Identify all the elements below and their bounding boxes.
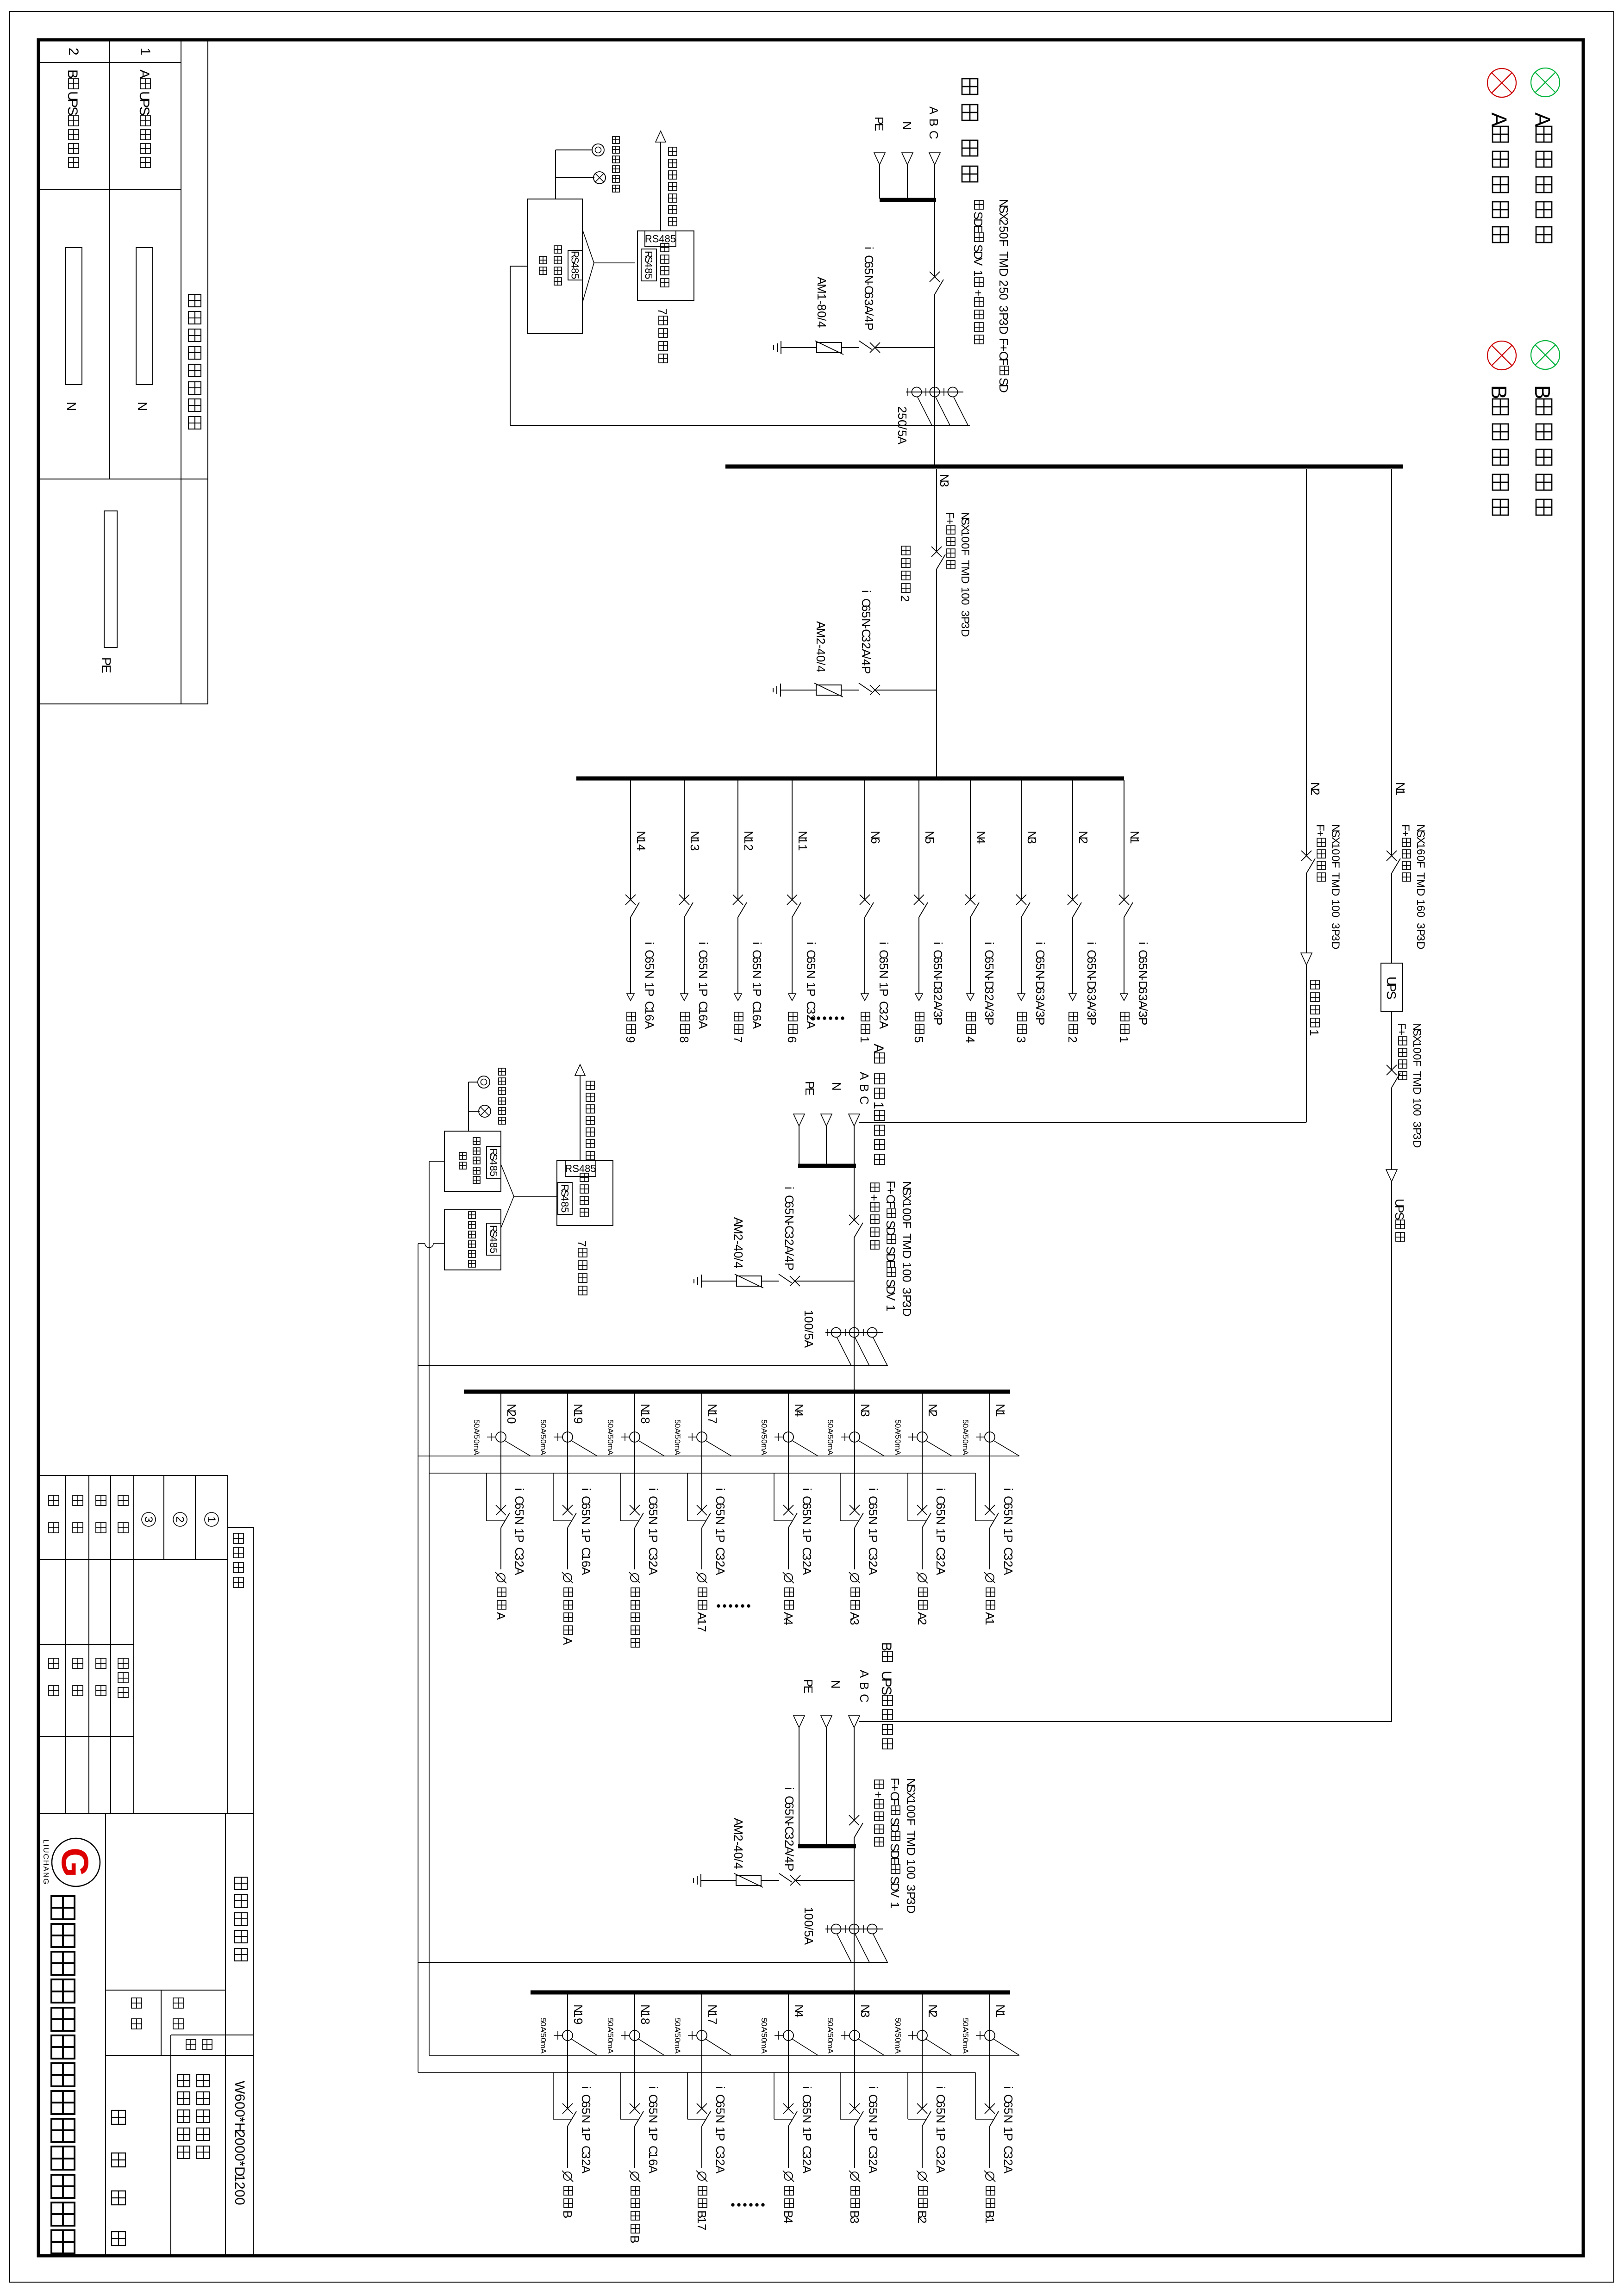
svg-text:2: 2 — [898, 595, 912, 602]
svg-text:50A/50mA: 50A/50mA — [961, 1419, 970, 1456]
svg-text:+: + — [867, 1194, 881, 1201]
svg-text:N1: N1 — [1393, 782, 1407, 795]
svg-text:iC65N1PC32A: iC65N1PC32A — [934, 2086, 948, 2174]
svg-text:7: 7 — [575, 1240, 589, 1247]
svg-text:N19: N19 — [571, 1404, 585, 1424]
svg-text:A: A — [561, 1637, 575, 1645]
svg-text:N1: N1 — [993, 1404, 1007, 1417]
svg-text:N2: N2 — [1308, 782, 1322, 795]
svg-text:50A/50mA: 50A/50mA — [539, 1419, 548, 1456]
svg-text:B: B — [561, 2210, 575, 2218]
svg-text:iC65N-C32A/4P: iC65N-C32A/4P — [782, 1187, 796, 1270]
svg-text:iC65N1PC32A: iC65N1PC32A — [713, 1488, 727, 1575]
svg-text:NSX160FTMD1603P3D: NSX160FTMD1603P3D — [1414, 824, 1427, 949]
svg-text:B17: B17 — [695, 2210, 709, 2230]
svg-text:50A/50mA: 50A/50mA — [893, 1419, 902, 1456]
svg-text:N: N — [829, 1680, 843, 1689]
svg-text:B4: B4 — [781, 2210, 795, 2223]
svg-text:RS485: RS485 — [559, 1184, 571, 1213]
svg-text:AM2-40/4: AM2-40/4 — [814, 621, 828, 672]
svg-text:F+OF: F+OF — [884, 1181, 898, 1208]
svg-text:1: 1 — [871, 1101, 886, 1109]
svg-text:N: N — [64, 402, 79, 411]
svg-text:iC65N1PC32A: iC65N1PC32A — [800, 2086, 814, 2174]
svg-text:N17: N17 — [706, 1404, 719, 1424]
svg-text:iC65N1PC32A: iC65N1PC32A — [804, 942, 818, 1029]
svg-text:F+: F+ — [943, 512, 956, 524]
svg-text:iC65N-D63A/3P: iC65N-D63A/3P — [1136, 942, 1150, 1025]
svg-text:N20: N20 — [505, 1404, 518, 1424]
svg-text:UPS: UPS — [879, 1671, 894, 1695]
svg-text:F+: F+ — [1395, 1023, 1408, 1035]
svg-text:SD: SD — [888, 1817, 902, 1833]
svg-text:7: 7 — [656, 308, 669, 315]
svg-text:SDE: SDE — [888, 1843, 902, 1865]
svg-text:iC65N1PC32A: iC65N1PC32A — [800, 1488, 814, 1575]
svg-text:NSX100FTMD1003P3D: NSX100FTMD1003P3D — [904, 1778, 918, 1914]
svg-text:iC65N1PC16A: iC65N1PC16A — [696, 942, 710, 1029]
svg-text:B: B — [628, 2235, 642, 2243]
svg-text:N14: N14 — [634, 831, 648, 851]
svg-text:N3: N3 — [858, 1404, 872, 1417]
svg-text:A17: A17 — [695, 1612, 709, 1632]
svg-text:N2: N2 — [926, 1404, 940, 1417]
svg-text:A2: A2 — [915, 1612, 929, 1625]
svg-text:B3: B3 — [848, 2210, 862, 2223]
svg-text:N1: N1 — [1128, 831, 1142, 844]
svg-text:iC65N1PC32A: iC65N1PC32A — [1001, 2086, 1015, 2174]
svg-text:B: B — [1487, 385, 1511, 399]
svg-text:RS485: RS485 — [645, 233, 676, 245]
svg-text:N: N — [900, 121, 914, 130]
svg-text:iC65N1PC16A: iC65N1PC16A — [750, 942, 764, 1029]
svg-text:50A/50mA: 50A/50mA — [606, 2018, 615, 2054]
svg-text:N3: N3 — [1025, 831, 1039, 844]
svg-text:SD: SD — [997, 378, 1011, 393]
svg-text:ABC: ABC — [857, 1072, 871, 1105]
svg-text:RS485: RS485 — [488, 1225, 500, 1253]
svg-text:iC65N-C63A/4P: iC65N-C63A/4P — [862, 247, 876, 330]
svg-text:N12: N12 — [742, 831, 756, 851]
svg-text:ABC: ABC — [857, 1670, 871, 1703]
svg-text:50A/50mA: 50A/50mA — [961, 2018, 970, 2054]
svg-text:B2: B2 — [915, 2210, 929, 2223]
svg-text:7: 7 — [731, 1036, 745, 1043]
svg-text:100/5A: 100/5A — [802, 1907, 816, 1945]
svg-text:NSX100FTMD1003P3D: NSX100FTMD1003P3D — [959, 512, 971, 637]
svg-text:B: B — [65, 69, 80, 79]
svg-text:N6: N6 — [868, 831, 882, 844]
svg-text:50A/50mA: 50A/50mA — [472, 1419, 481, 1456]
svg-text:50A/50mA: 50A/50mA — [826, 2018, 835, 2054]
svg-text:9: 9 — [624, 1036, 637, 1043]
svg-text:1: 1 — [1117, 1036, 1131, 1043]
svg-text:SD: SD — [884, 1220, 898, 1236]
svg-text:iC65N1PC16A: iC65N1PC16A — [646, 2086, 660, 2174]
svg-text:iC65N-D32A/3P: iC65N-D32A/3P — [982, 942, 996, 1025]
svg-text:+: + — [971, 289, 985, 296]
svg-text:50A/50mA: 50A/50mA — [606, 1419, 615, 1456]
svg-text:NSX250FTMD2503P3DF+OF: NSX250FTMD2503P3DF+OF — [997, 199, 1011, 366]
svg-text:PE: PE — [872, 117, 886, 131]
svg-text:N1: N1 — [993, 2004, 1007, 2017]
svg-text:N4: N4 — [974, 831, 988, 844]
svg-text:RS485: RS485 — [643, 251, 655, 279]
svg-text:50A/50mA: 50A/50mA — [673, 2018, 682, 2054]
svg-text:N: N — [135, 402, 150, 411]
svg-text:A3: A3 — [848, 1612, 862, 1625]
svg-text:B: B — [879, 1642, 894, 1651]
svg-text:iC65N1PC32A: iC65N1PC32A — [713, 2086, 727, 2174]
svg-text:UPS: UPS — [137, 91, 152, 116]
svg-text:NSX100FTMD1003P3D: NSX100FTMD1003P3D — [1329, 824, 1342, 949]
svg-text:N11: N11 — [796, 831, 810, 851]
svg-text:AM2-40/4: AM2-40/4 — [731, 1818, 745, 1869]
svg-text:50A/50mA: 50A/50mA — [760, 2018, 768, 2054]
svg-text:iC65N1PC32A: iC65N1PC32A — [866, 2086, 880, 2174]
svg-text:A: A — [871, 1044, 886, 1053]
svg-text:SDE: SDE — [884, 1246, 898, 1268]
svg-text:8: 8 — [677, 1036, 691, 1043]
svg-text:SDE: SDE — [971, 212, 985, 233]
svg-text:iC65N1PC32A: iC65N1PC32A — [1001, 1488, 1015, 1575]
svg-text:iC65N-D63A/3P: iC65N-D63A/3P — [1085, 942, 1099, 1025]
svg-text:RS485: RS485 — [569, 251, 581, 279]
svg-text:AM2-40/4: AM2-40/4 — [731, 1217, 745, 1268]
svg-text:N4: N4 — [792, 2004, 806, 2017]
svg-text:G: G — [54, 1848, 96, 1877]
svg-text:5: 5 — [912, 1036, 926, 1043]
svg-text:ABC: ABC — [927, 106, 941, 139]
svg-text:A1: A1 — [983, 1612, 997, 1625]
svg-text:RS485: RS485 — [488, 1148, 500, 1176]
svg-text:iC65N1PC32A: iC65N1PC32A — [512, 1488, 526, 1575]
svg-text:4: 4 — [963, 1036, 977, 1043]
svg-text:UPS: UPS — [65, 91, 80, 116]
svg-text:A: A — [494, 1612, 508, 1620]
svg-text:PE: PE — [803, 1081, 817, 1095]
svg-text:SDV1: SDV1 — [888, 1876, 902, 1908]
svg-text:F+: F+ — [1399, 824, 1412, 837]
svg-text:PE: PE — [99, 657, 113, 673]
svg-text:iC65N1PC32A: iC65N1PC32A — [866, 1488, 880, 1575]
svg-text:A: A — [1530, 112, 1555, 127]
svg-text:50A/50mA: 50A/50mA — [539, 2018, 548, 2054]
svg-text:N4: N4 — [792, 1404, 806, 1417]
svg-text:2: 2 — [66, 48, 81, 56]
svg-text:3: 3 — [142, 1516, 155, 1522]
svg-text:2: 2 — [1066, 1036, 1080, 1043]
svg-text:F+OF: F+OF — [888, 1778, 902, 1805]
svg-text:W600*H2000*D1200: W600*H2000*D1200 — [232, 2081, 247, 2205]
svg-text:A: A — [1487, 112, 1511, 127]
svg-text:N18: N18 — [638, 1404, 652, 1424]
svg-text:iC65N1PC32A: iC65N1PC32A — [877, 942, 891, 1029]
svg-text:N18: N18 — [638, 2004, 652, 2024]
svg-text:1: 1 — [205, 1516, 218, 1522]
svg-text:iC65N-D63A/3P: iC65N-D63A/3P — [1033, 942, 1047, 1025]
svg-text:iC65N1PC32A: iC65N1PC32A — [646, 1488, 660, 1575]
svg-text:N3: N3 — [937, 474, 951, 487]
svg-text:3: 3 — [1014, 1036, 1028, 1043]
svg-text:iC65N-C32A/4P: iC65N-C32A/4P — [782, 1787, 796, 1871]
svg-text:A: A — [137, 69, 152, 79]
svg-text:iC65N1PC32A: iC65N1PC32A — [934, 1488, 948, 1575]
svg-text:2: 2 — [174, 1516, 186, 1522]
svg-text:UPS: UPS — [1384, 977, 1399, 1000]
svg-text:UPS: UPS — [1393, 1199, 1406, 1220]
svg-text:6: 6 — [785, 1036, 799, 1043]
svg-text:LIUCHANG: LIUCHANG — [42, 1840, 50, 1885]
svg-text:RS485: RS485 — [565, 1163, 596, 1175]
svg-text:NSX100FTMD1003P3D: NSX100FTMD1003P3D — [1411, 1023, 1423, 1148]
svg-text:50A/50mA: 50A/50mA — [673, 1419, 682, 1456]
svg-text:N: N — [830, 1082, 843, 1091]
svg-text:N5: N5 — [923, 831, 937, 844]
svg-text:100/5A: 100/5A — [802, 1310, 816, 1348]
svg-text:1: 1 — [1307, 1029, 1321, 1036]
svg-text:NSX100FTMD1003P3D: NSX100FTMD1003P3D — [900, 1181, 914, 1317]
svg-text:iC65N-C32A/4P: iC65N-C32A/4P — [859, 590, 873, 674]
svg-text:AM1-80/4: AM1-80/4 — [815, 277, 829, 328]
svg-text:N3: N3 — [858, 2004, 872, 2017]
svg-text:B1: B1 — [983, 2210, 997, 2223]
svg-text:50A/50mA: 50A/50mA — [760, 1419, 768, 1456]
svg-text:N17: N17 — [706, 2004, 719, 2024]
svg-text:iC65N1PC16A: iC65N1PC16A — [643, 942, 656, 1029]
svg-text:iC65N-D32A/3P: iC65N-D32A/3P — [931, 942, 945, 1025]
svg-text:iC65N1PC16A: iC65N1PC16A — [579, 1488, 593, 1575]
svg-text:1: 1 — [858, 1036, 872, 1043]
svg-text:1: 1 — [137, 48, 153, 56]
svg-text:PE: PE — [801, 1679, 815, 1693]
svg-text:50A/50mA: 50A/50mA — [893, 2018, 902, 2054]
svg-text:F+: F+ — [1314, 824, 1326, 837]
svg-text:SDV1: SDV1 — [971, 244, 985, 276]
svg-text:SDV1: SDV1 — [884, 1279, 898, 1311]
svg-text:N19: N19 — [571, 2004, 585, 2024]
svg-text:N2: N2 — [926, 2004, 940, 2017]
svg-text:iC65N1PC32A: iC65N1PC32A — [579, 2086, 593, 2174]
svg-text:A4: A4 — [781, 1612, 795, 1625]
svg-text:B: B — [1530, 385, 1555, 399]
svg-text:+: + — [871, 1791, 885, 1798]
svg-text:N2: N2 — [1076, 831, 1090, 844]
svg-text:N13: N13 — [688, 831, 702, 851]
svg-text:50A/50mA: 50A/50mA — [826, 1419, 835, 1456]
